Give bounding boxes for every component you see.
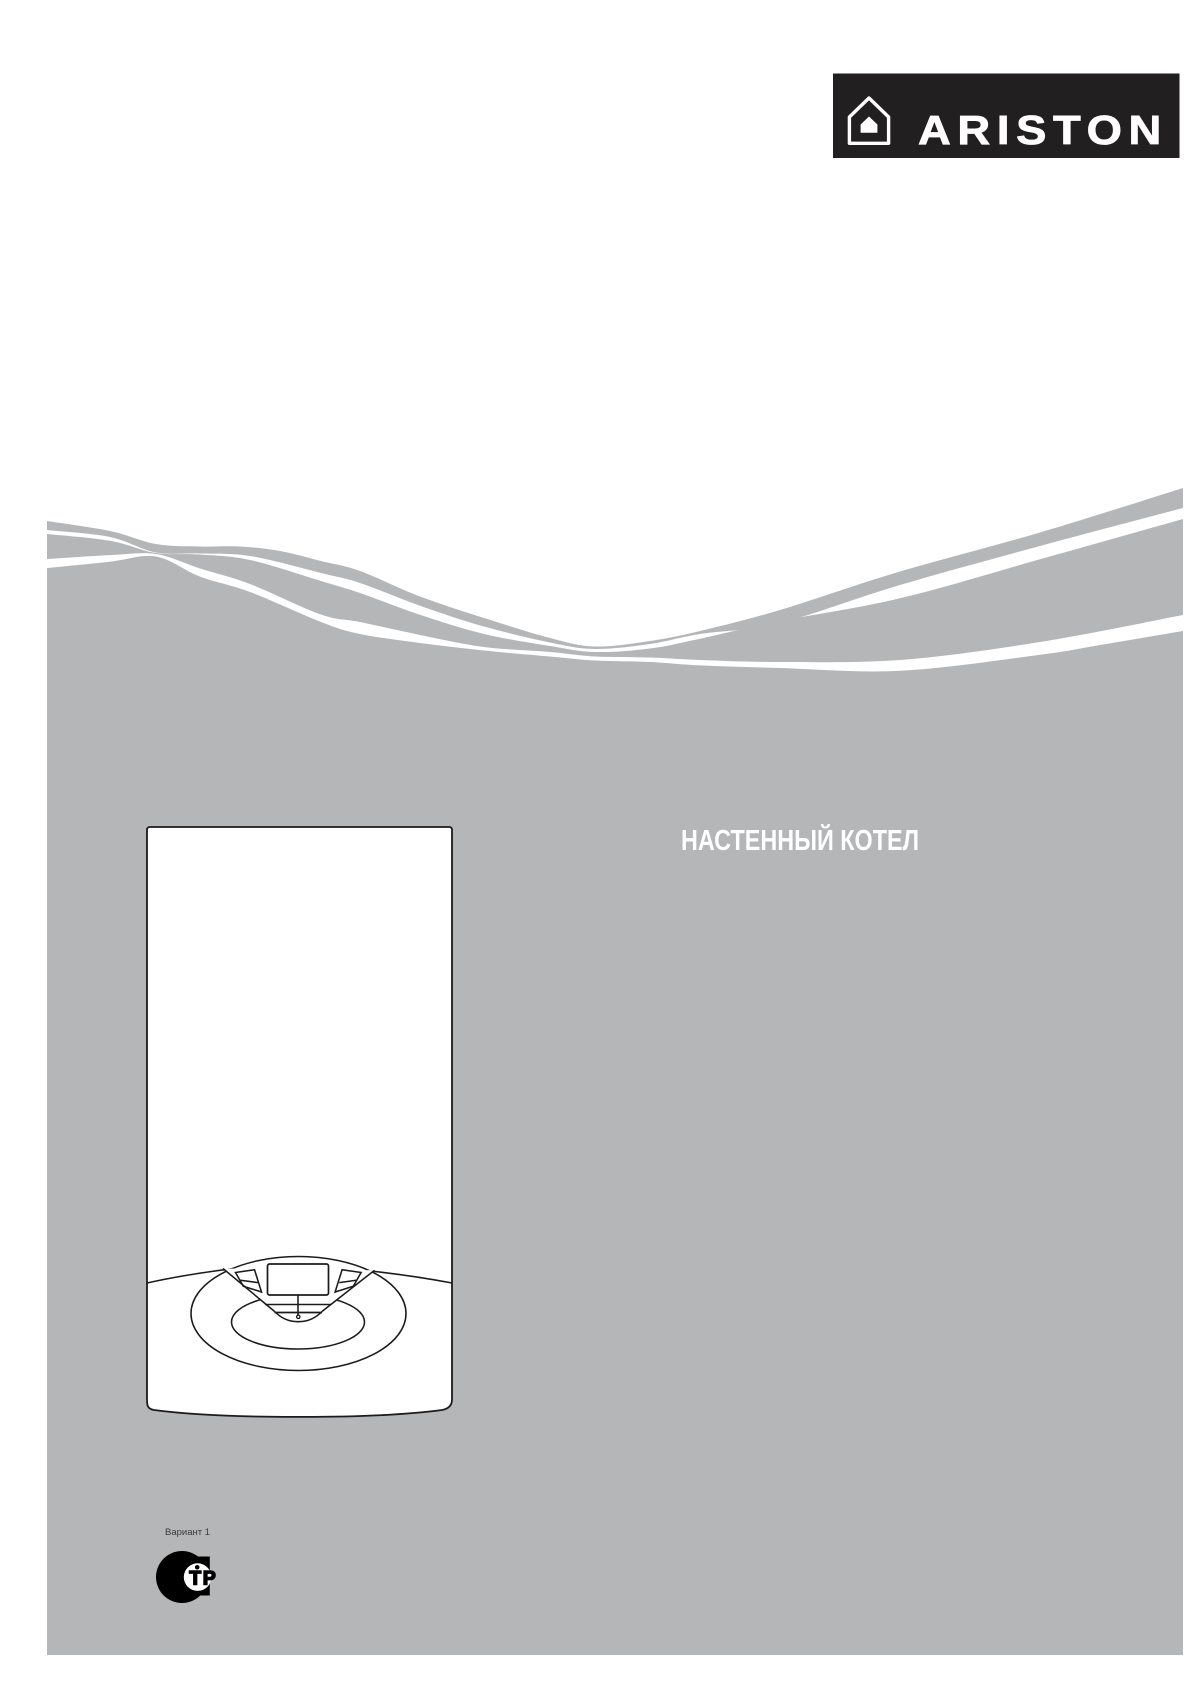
svg-text:НАСТЕННЫЙ КОТЕЛ: НАСТЕННЫЙ КОТЕЛ	[681, 823, 919, 857]
svg-text:ARISTON: ARISTON	[918, 107, 1168, 153]
svg-text:Вариант 1: Вариант 1	[165, 1527, 210, 1538]
svg-text:ТР: ТР	[189, 1568, 217, 1590]
